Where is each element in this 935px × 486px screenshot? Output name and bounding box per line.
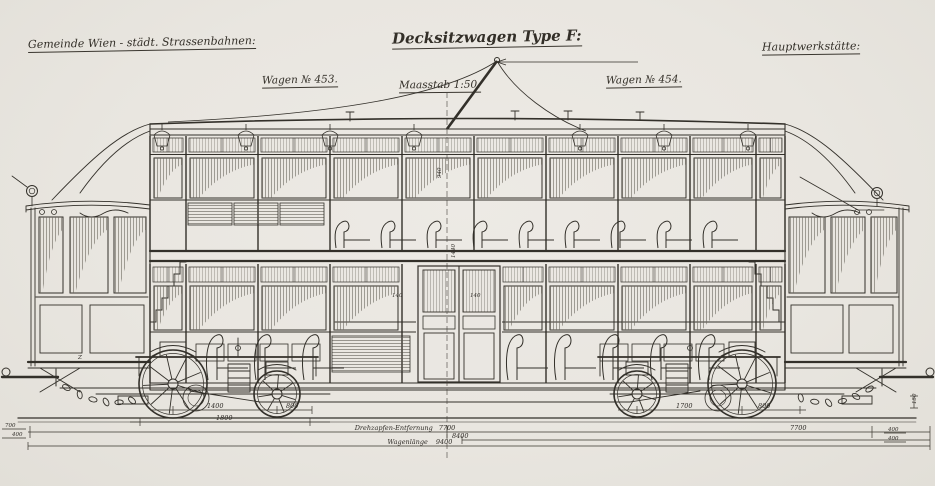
dim-platform-z: Z: [77, 355, 82, 361]
dim-pivot-right: 7700: [790, 424, 807, 432]
dim-right-wheelbase: 1700: [676, 402, 693, 410]
trolley-pole: [168, 58, 638, 132]
roof-arc: [150, 119, 785, 125]
dim-edge-r1: 400: [887, 427, 899, 433]
drawing-sheet: Gemeinde Wien - städt. Strassenbahnen: D…: [0, 0, 935, 486]
dim-edge-l2: 400: [11, 432, 23, 438]
dim-length-value: 9400: [436, 438, 453, 446]
headlamp-left: [12, 176, 38, 206]
left-bogie: [136, 338, 318, 411]
dim-door-b: 140: [470, 293, 481, 299]
dim-mid: 8400: [452, 432, 469, 440]
dim-edge-l1: 700: [5, 423, 16, 429]
coupler-right: [880, 368, 934, 386]
dim-left-frame: 1800: [216, 414, 233, 422]
dim-pivot-distance: Drehzapfen-Entfernung7700: [354, 424, 456, 432]
coupler-left: [2, 368, 58, 386]
dim-left-gap: 800: [286, 402, 298, 410]
dim-v-center: 1440: [451, 244, 457, 258]
dim-right-gap: 800: [758, 402, 770, 410]
tram-side-elevation: 1400 800 1800 1700 800 Drehzapfen-Entfer…: [0, 0, 935, 486]
dim-car-length: Wagenlänge9400: [388, 438, 453, 446]
dim-pivot-label: Drehzapfen-Entfernung: [354, 424, 433, 432]
dim-length-label: Wagenlänge: [388, 438, 428, 446]
dim-edge-r2: 400: [887, 436, 899, 442]
dim-v-upper: 940: [437, 167, 443, 178]
dim-edge-r3: 150: [912, 393, 918, 404]
dim-pivot-value: 7700: [439, 424, 456, 432]
dim-door-a: 140: [392, 293, 403, 299]
dim-left-wheelbase: 1400: [207, 402, 224, 410]
